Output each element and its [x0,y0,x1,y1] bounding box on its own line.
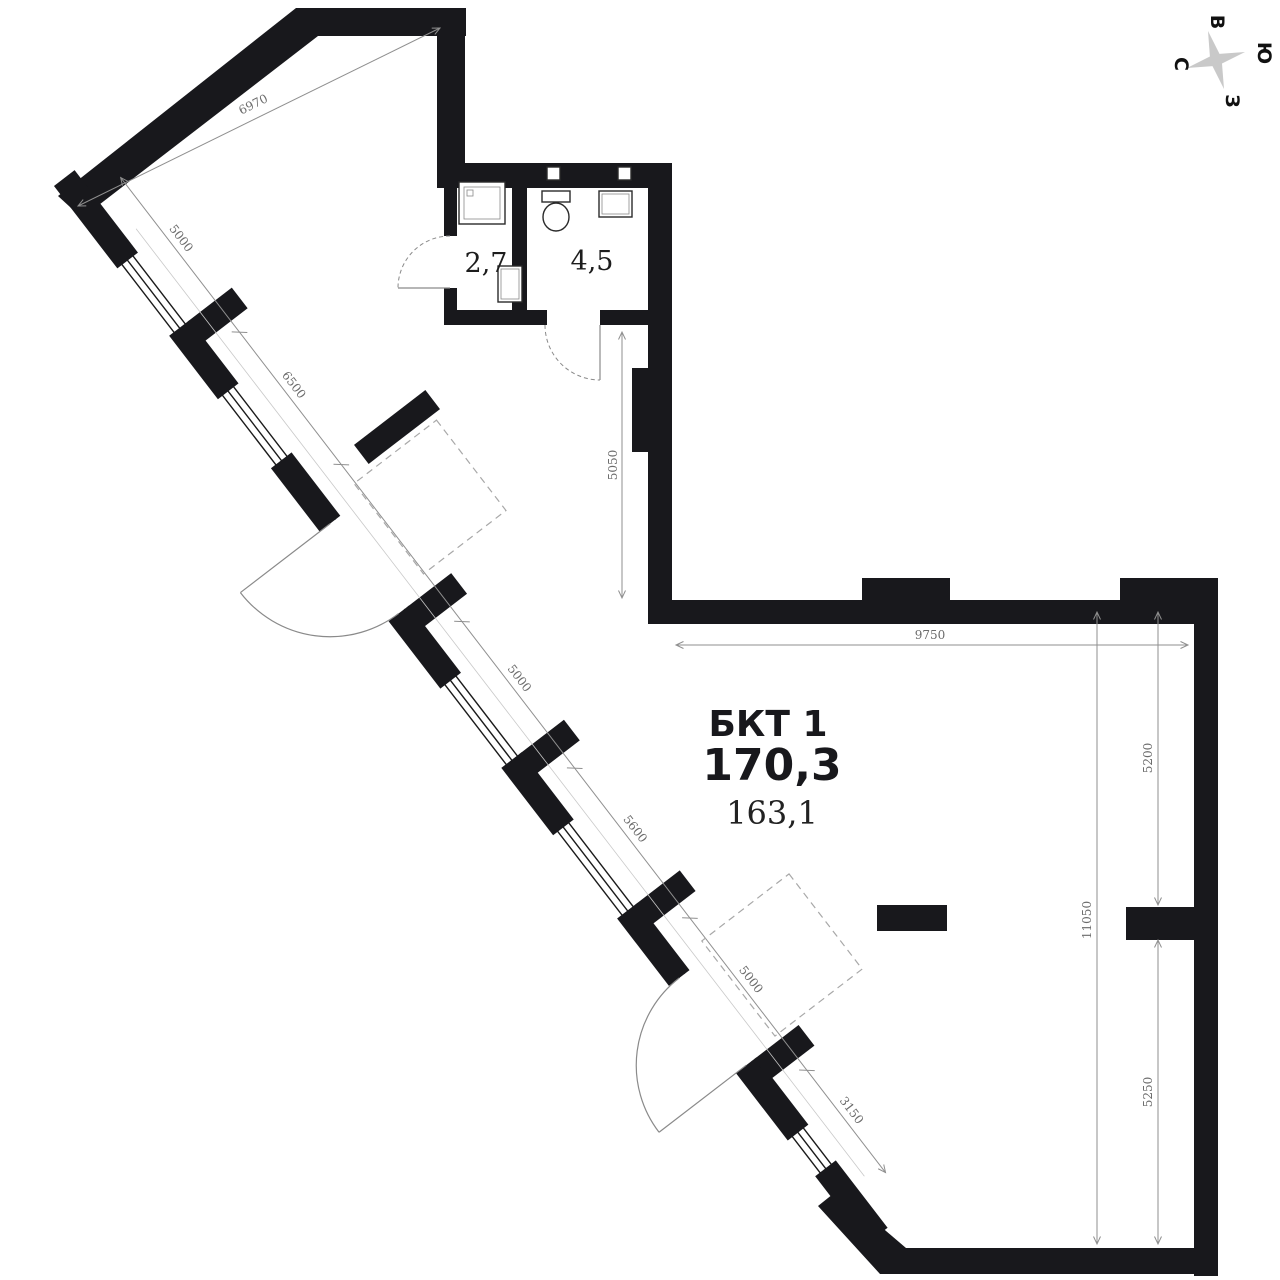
unit-area-main: 170,3 [702,740,841,791]
dim-right-lower: 5250 [1141,1077,1155,1108]
dim-chain-3: 5000 [505,662,535,695]
room-area-bath-large: 4,5 [571,246,614,277]
dim-inner-vertical: 5050 [606,450,620,481]
wall-bath-bottom-b [527,310,547,325]
pier-east-upper [632,368,648,452]
dim-line-facade-aux [136,229,864,1176]
compass-west-label: З [1221,94,1243,108]
sink-large-bath [599,191,632,217]
wall-vent-1 [547,167,560,180]
door-swing-arc-bath-small [398,236,450,288]
door-leaf-1 [240,524,330,593]
dim-line-facade-chain [121,178,886,1173]
toilet-bowl [543,203,569,231]
door-swing-arc-bath-large [545,325,600,380]
shower-tray [459,182,505,224]
facade-pier-2 [271,452,340,531]
wall-right [1194,578,1218,1276]
compass: В Ю С З [1170,15,1275,108]
wall-bath-left-a [444,188,457,236]
dim-chain-2: 6500 [279,369,309,402]
wall-lower-top [648,600,1216,624]
wall-east-upper [648,163,672,614]
wall-upper-block-right [437,8,465,188]
dim-chain-4: 5600 [620,813,650,846]
dim-top: 9750 [915,628,946,642]
dim-right-upper: 5200 [1141,743,1155,774]
dim-chain-5: 5000 [736,963,766,996]
compass-east-label: В [1206,15,1228,29]
door-leaf-2 [659,1065,746,1132]
room-area-bath-small: 2,7 [465,248,508,279]
floor-plan-page: 5000 6500 5000 5600 5000 3150 6970 [0,0,1280,1280]
pilaster-top-1 [862,578,950,600]
toilet-tank [542,191,570,202]
floor-plan-canvas: 5000 6500 5000 5600 5000 3150 6970 [0,0,1280,1280]
unit-area-alt: 163,1 [726,794,818,832]
dim-right-full: 11050 [1080,901,1094,939]
dim-chain-1: 5000 [166,222,196,255]
wall-bath-bottom-a [444,310,527,325]
freestanding-column [877,905,947,931]
wall-top-left-diagonal [58,8,318,218]
dim-chain-6: 3150 [837,1094,867,1127]
stub-right-wall [1126,907,1194,940]
compass-north-label: С [1170,57,1192,71]
compass-south-label: Ю [1253,42,1275,64]
wall-vent-2 [618,167,631,180]
pilaster-top-2 [1120,578,1197,600]
dimensions: 6970 5050 9750 5200 11050 5250 [78,28,1188,1244]
wall-bath-bottom-c [600,310,672,325]
dashed-zone-lower [702,874,862,1036]
unit-name: БКТ 1 [708,704,827,745]
compass-star-icon [1187,31,1245,89]
wall-bottom [886,1248,1216,1274]
